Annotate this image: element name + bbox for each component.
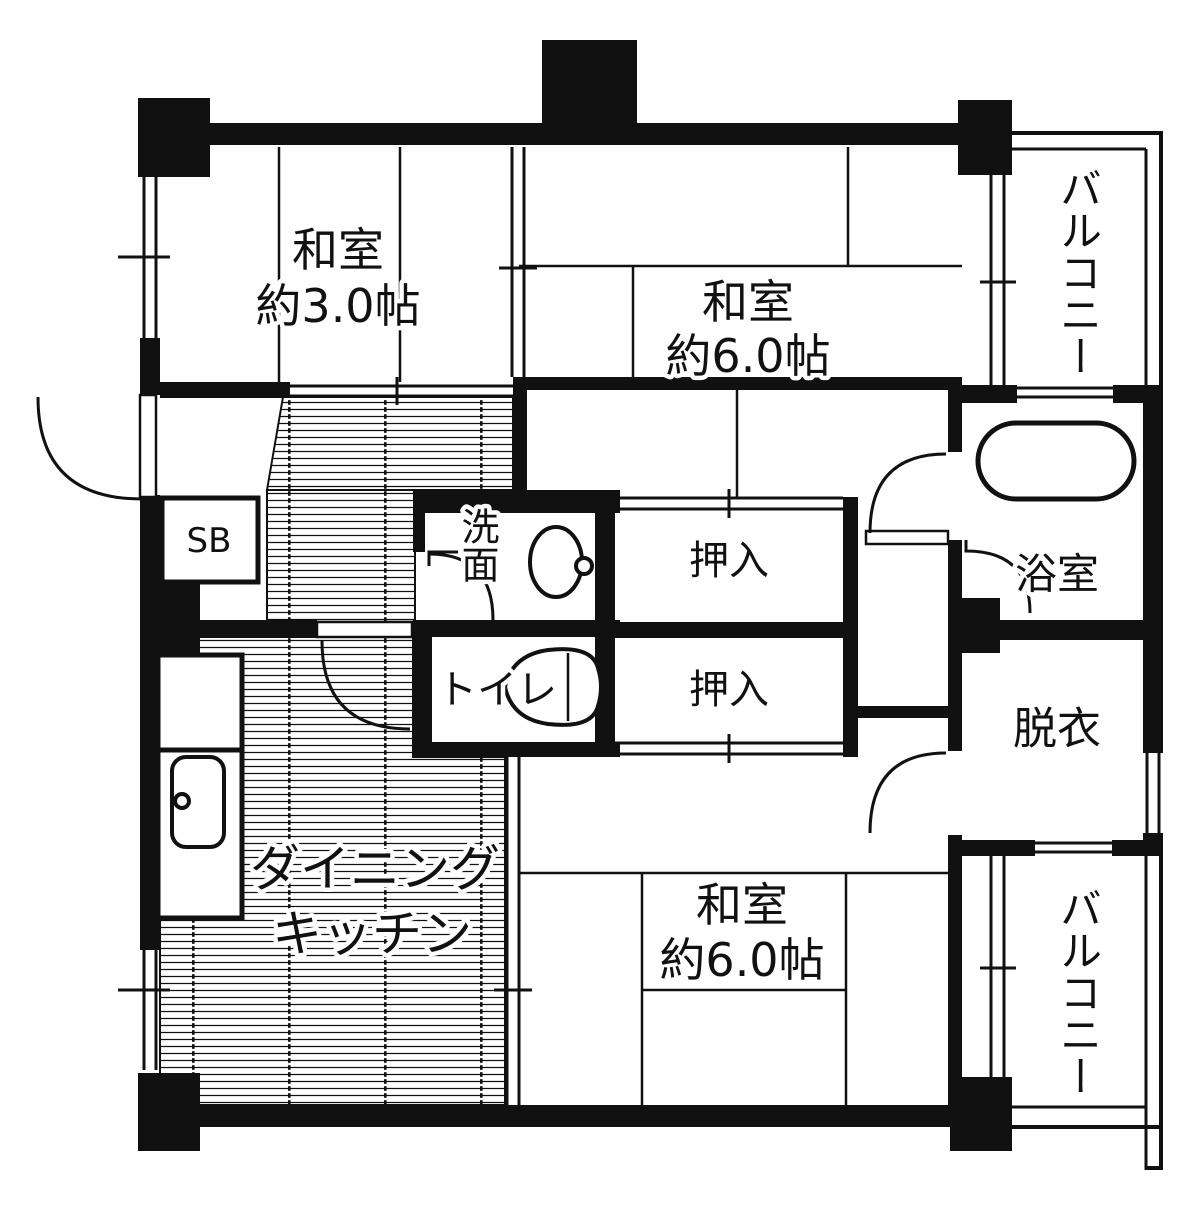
floor-plan-page: 和室 約3.0帖 和室 約6.0帖 和室 約6.0帖 ダイニング キッチン 押入… [0, 0, 1200, 1209]
floor-plan: 和室 約3.0帖 和室 約6.0帖 和室 約6.0帖 ダイニング キッチン 押入… [0, 0, 1200, 1209]
bath-right-wall [1143, 385, 1163, 753]
bath-dressing-block [960, 598, 1000, 653]
toilet-left-wall [413, 637, 432, 757]
washitsu3-bottom-wall [160, 382, 290, 398]
hallway-hatch [267, 490, 415, 622]
entrance-hall-hatch [267, 397, 513, 490]
balcony-bottom-label: バルコニー [1054, 887, 1103, 1097]
bathtub [978, 423, 1134, 499]
kitchen-sink [158, 655, 242, 918]
shoe-box-label: SB [187, 521, 232, 561]
entrance-dk-wall [200, 620, 317, 637]
right-wall-seg3 [948, 833, 962, 1105]
entrance-step-wall [160, 582, 200, 660]
window-dressing-right [1141, 753, 1165, 833]
dressing-label: 脱衣 [1013, 704, 1101, 755]
washitsu6-top-label-line2: 約6.0帖 [665, 329, 830, 383]
toilet-top-wall [413, 620, 620, 637]
washroom-label: 洗面 [455, 507, 499, 583]
washroom-left-wall [413, 513, 425, 552]
toilet-bottom-wall [413, 742, 620, 757]
dining-label-line1: ダイニング [250, 840, 500, 898]
washitsu3-label-line1: 和室 [292, 223, 384, 277]
washitsu6-bottom-label-line2: 約6.0帖 [659, 933, 824, 987]
washitsu6-top-label-line1: 和室 [702, 275, 794, 329]
washitsu3-label-line2: 約3.0帖 [255, 279, 420, 333]
washroom-top-wall [413, 490, 620, 513]
bathroom-label: 浴室 [1015, 550, 1099, 599]
window-bath-top [1017, 383, 1113, 405]
pillar-top-right [958, 100, 1012, 175]
washitsu6-bottom-label-line1: 和室 [696, 878, 788, 932]
closet-top-label: 押入 [689, 538, 769, 584]
balcony-top-label: バルコニー [1054, 167, 1103, 377]
closet-bottom-label: 押入 [689, 667, 769, 713]
bottom-wall [140, 1105, 965, 1127]
pillar-top-left [138, 98, 210, 177]
pillar-top-middle [542, 40, 637, 145]
right-wall-seg2 [948, 540, 962, 751]
window-dressing-balcony [1035, 838, 1112, 858]
corridor-bottom-wall [843, 706, 962, 718]
left-wall-upper [140, 338, 160, 395]
dining-label-line2: キッチン [272, 905, 472, 963]
toilet-label: トイレ [437, 667, 557, 713]
right-wall-seg1 [948, 385, 962, 452]
closet-mid-wall [595, 622, 858, 638]
